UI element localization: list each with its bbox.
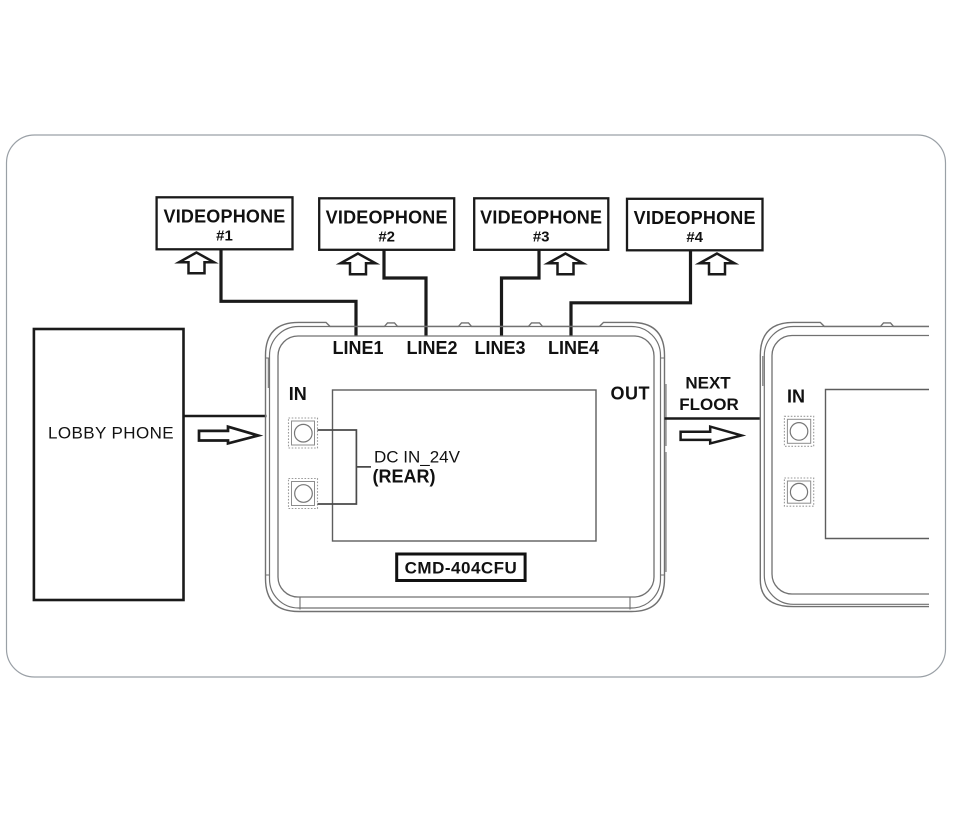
svg-text:LINE4: LINE4 [548, 338, 599, 358]
svg-text:LINE3: LINE3 [474, 338, 525, 358]
svg-text:CMD-404CFU: CMD-404CFU [405, 559, 518, 578]
svg-text:LOBBY PHONE: LOBBY PHONE [48, 424, 174, 443]
svg-text:FLOOR: FLOOR [679, 395, 739, 414]
svg-text:VIDEOPHONE: VIDEOPHONE [634, 208, 756, 228]
svg-text:DC IN_24V: DC IN_24V [374, 447, 461, 466]
svg-text:#1: #1 [216, 228, 233, 245]
svg-text:#3: #3 [533, 229, 550, 246]
svg-text:IN: IN [787, 387, 805, 407]
svg-text:LINE1: LINE1 [332, 338, 383, 358]
svg-text:(REAR): (REAR) [373, 467, 436, 487]
svg-text:VIDEOPHONE: VIDEOPHONE [480, 208, 602, 228]
svg-text:LINE2: LINE2 [406, 338, 457, 358]
svg-text:OUT: OUT [610, 383, 650, 403]
svg-text:VIDEOPHONE: VIDEOPHONE [163, 207, 285, 227]
svg-text:IN: IN [289, 384, 307, 404]
svg-text:VIDEOPHONE: VIDEOPHONE [326, 208, 448, 228]
svg-text:NEXT: NEXT [685, 374, 731, 393]
svg-text:#2: #2 [378, 229, 395, 246]
svg-text:#4: #4 [686, 229, 703, 246]
